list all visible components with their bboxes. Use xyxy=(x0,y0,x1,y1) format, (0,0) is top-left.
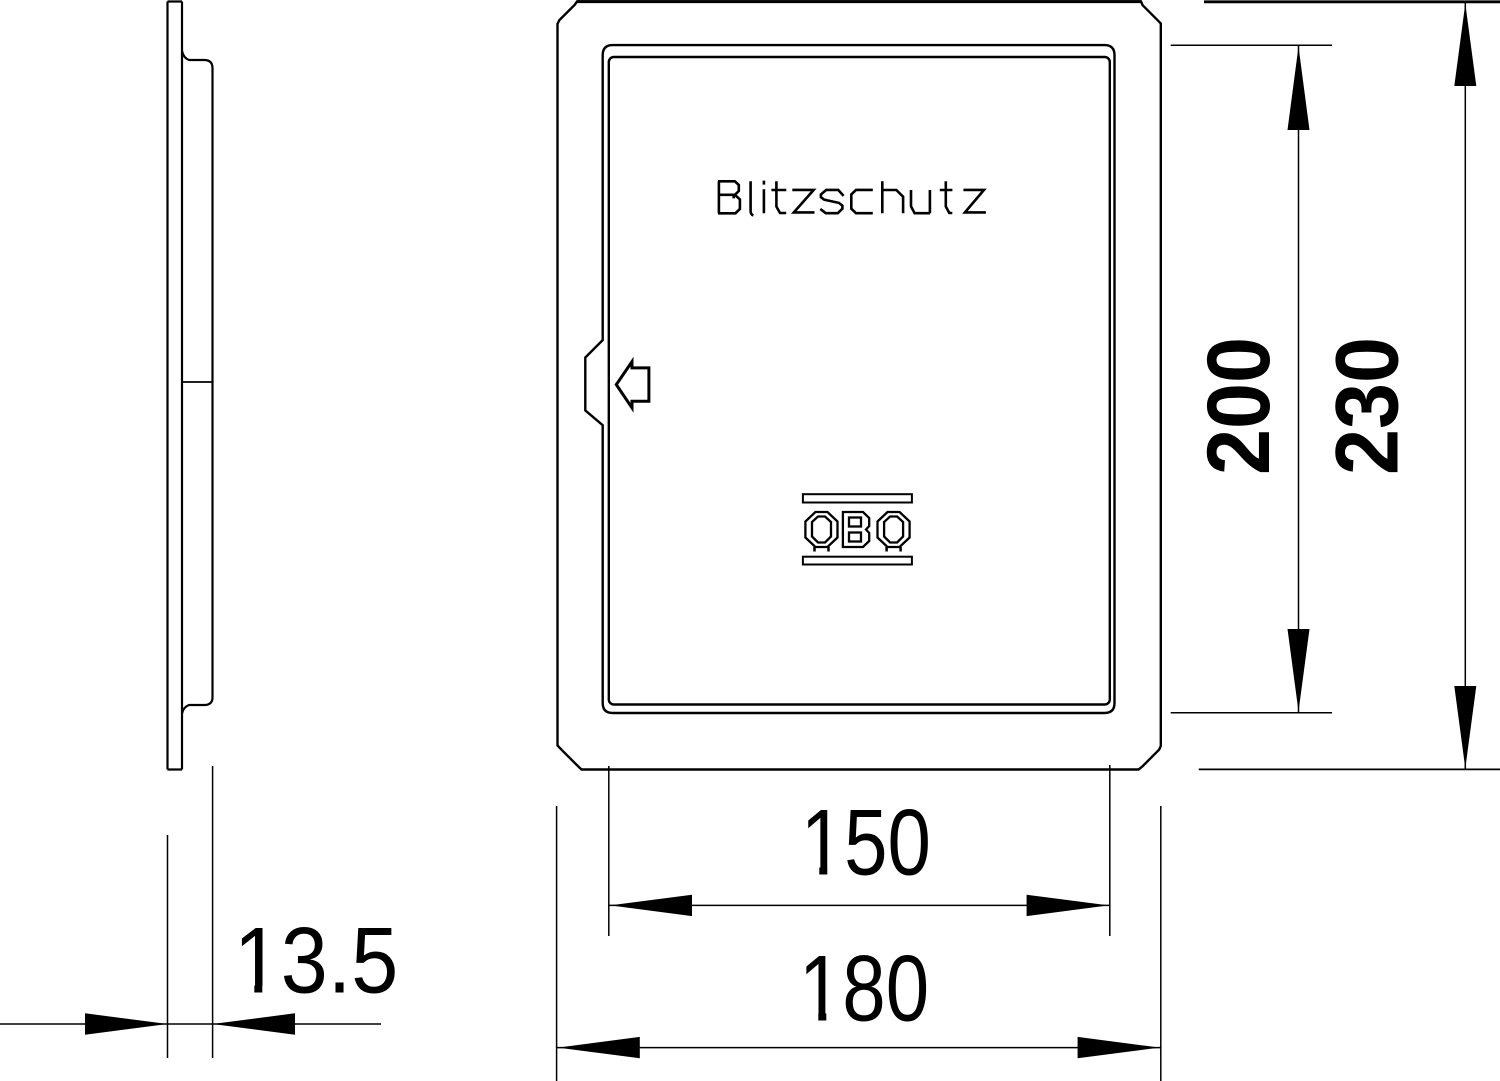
svg-text:200: 200 xyxy=(1189,337,1288,475)
svg-text:13.5: 13.5 xyxy=(234,907,399,1012)
svg-text:150: 150 xyxy=(801,791,931,895)
svg-text:180: 180 xyxy=(799,937,929,1041)
svg-text:230: 230 xyxy=(1318,337,1417,475)
